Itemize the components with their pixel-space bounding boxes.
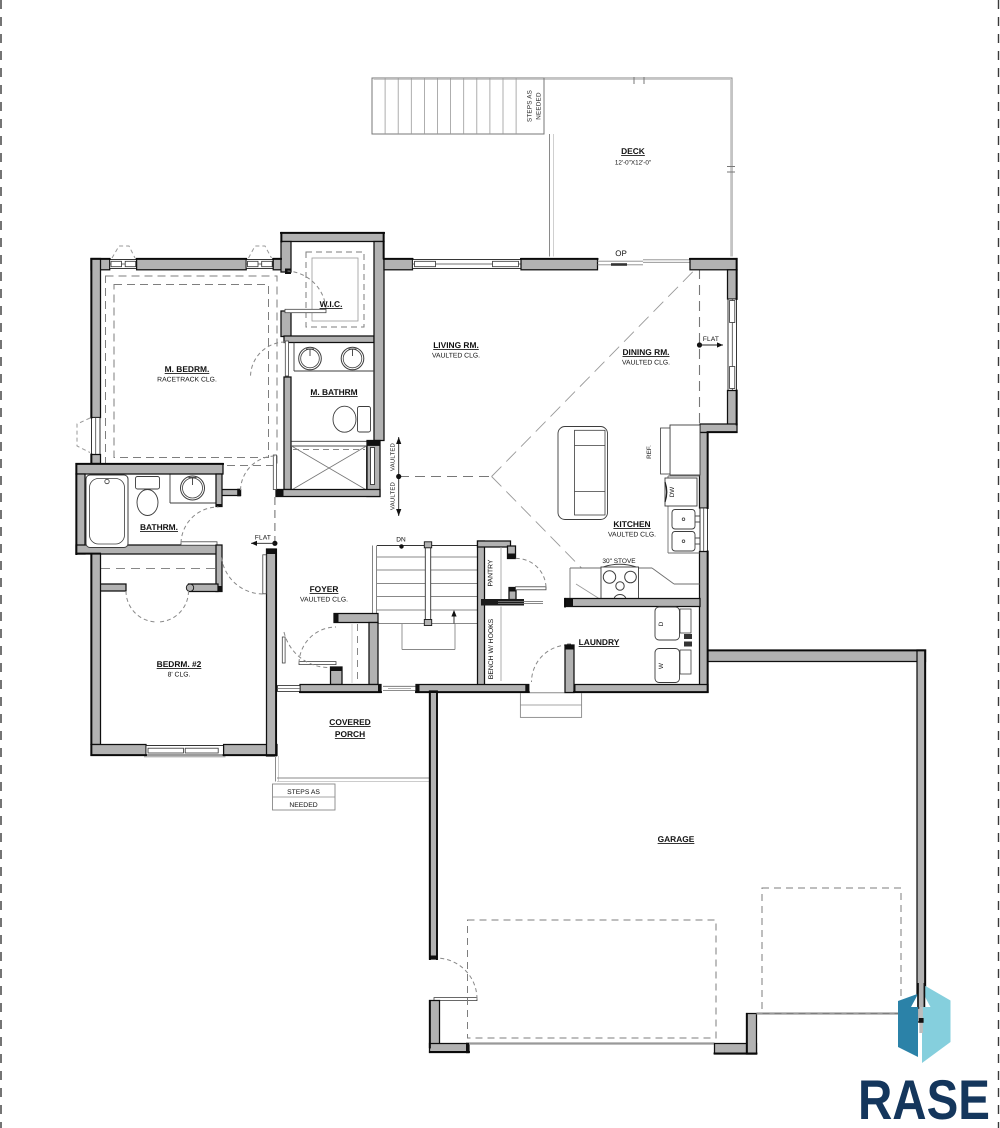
svg-text:30" STOVE: 30" STOVE bbox=[602, 558, 636, 565]
svg-text:PORCH: PORCH bbox=[335, 729, 365, 739]
svg-text:W.I.C.: W.I.C. bbox=[320, 299, 343, 309]
svg-text:D: D bbox=[658, 621, 665, 626]
svg-text:8' CLG.: 8' CLG. bbox=[168, 672, 191, 679]
svg-text:STEPS AS: STEPS AS bbox=[287, 789, 320, 796]
svg-text:COVERED: COVERED bbox=[329, 717, 370, 727]
svg-text:DINING RM.: DINING RM. bbox=[623, 347, 670, 357]
svg-text:VAULTED CLG.: VAULTED CLG. bbox=[608, 532, 656, 539]
svg-text:BENCH W/ HOOKS: BENCH W/ HOOKS bbox=[488, 618, 495, 679]
svg-text:M. BEDRM.: M. BEDRM. bbox=[165, 364, 210, 374]
svg-text:M. BATHRM: M. BATHRM bbox=[310, 387, 357, 397]
svg-text:LIVING RM.: LIVING RM. bbox=[433, 340, 479, 350]
svg-text:OP: OP bbox=[615, 249, 627, 258]
svg-text:NEEDED: NEEDED bbox=[536, 92, 543, 120]
svg-text:RASE: RASE bbox=[858, 1068, 990, 1128]
svg-text:W: W bbox=[658, 663, 665, 669]
svg-text:VAULTED CLG.: VAULTED CLG. bbox=[622, 360, 670, 367]
svg-text:BATHRM.: BATHRM. bbox=[140, 522, 178, 532]
svg-text:NEEDED: NEEDED bbox=[289, 802, 317, 809]
svg-text:RACETRACK CLG.: RACETRACK CLG. bbox=[157, 377, 217, 384]
svg-text:DW: DW bbox=[669, 487, 676, 498]
svg-text:KITCHEN: KITCHEN bbox=[613, 519, 650, 529]
svg-text:12'-0"X12'-0": 12'-0"X12'-0" bbox=[615, 160, 651, 167]
svg-text:GARAGE: GARAGE bbox=[658, 834, 695, 844]
svg-text:DECK: DECK bbox=[621, 146, 645, 156]
svg-text:VAULTED: VAULTED bbox=[390, 442, 397, 471]
svg-text:PANTRY: PANTRY bbox=[488, 559, 495, 586]
svg-text:FLAT: FLAT bbox=[255, 535, 271, 542]
svg-text:VAULTED CLG.: VAULTED CLG. bbox=[432, 353, 480, 360]
svg-text:VAULTED CLG.: VAULTED CLG. bbox=[300, 597, 348, 604]
svg-text:LAUNDRY: LAUNDRY bbox=[579, 637, 620, 647]
svg-text:BEDRM. #2: BEDRM. #2 bbox=[157, 659, 202, 669]
svg-text:FOYER: FOYER bbox=[310, 584, 339, 594]
svg-text:STEPS AS: STEPS AS bbox=[527, 90, 534, 122]
svg-text:FLAT: FLAT bbox=[703, 336, 719, 343]
svg-text:VAULTED: VAULTED bbox=[390, 481, 397, 510]
svg-text:DN: DN bbox=[396, 537, 406, 544]
svg-text:REF.: REF. bbox=[646, 445, 653, 459]
